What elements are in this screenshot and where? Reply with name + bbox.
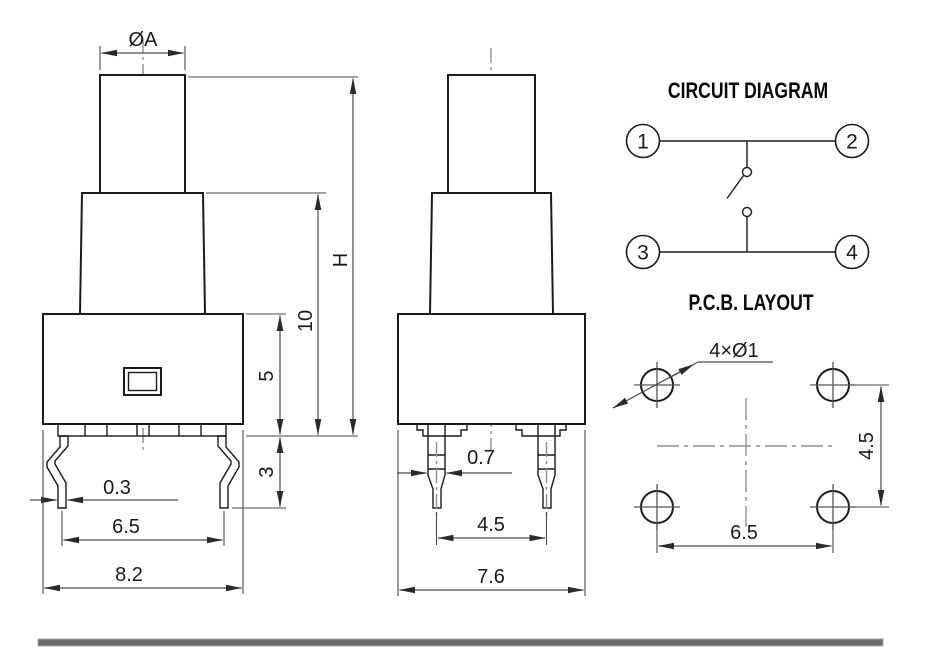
dim-plunger-diameter: ØA [129, 29, 159, 51]
front-right-leg [218, 436, 239, 508]
terminal-2-label: 2 [846, 130, 858, 153]
pcb-hole-bottom-left [634, 484, 680, 530]
side-left-tab [417, 424, 467, 436]
bottom-divider-bar [38, 639, 883, 646]
dim-leg-thickness: 0.3 [103, 477, 131, 499]
pcb-layout-title: P.C.B. LAYOUT [688, 291, 813, 315]
pcb-hole-bottom-right [810, 484, 856, 530]
dim-leg-spacing: 6.5 [112, 516, 140, 538]
dim-body-width: 8.2 [115, 564, 143, 586]
dim-body-depth: 7.6 [477, 566, 505, 588]
pcb-dim-horizontal: 6.5 [730, 522, 758, 544]
dim-pin-width: 0.7 [467, 447, 495, 469]
side-plunger [448, 75, 535, 193]
terminal-4-label: 4 [846, 241, 858, 264]
pcb-hole-top-right [810, 362, 856, 408]
drawing-canvas: ØA H 10 5 3 0.3 6.5 8.2 [0, 0, 928, 668]
pcb-hole-top-left [634, 362, 680, 408]
dim-pin-spacing: 4.5 [477, 514, 505, 536]
dim-upper-height: 10 [295, 310, 317, 332]
dim-body-height: 5 [256, 370, 278, 381]
circuit-diagram-title: CIRCUIT DIAGRAM [668, 79, 828, 103]
pcb-hole-callout-label: 4×Ø1 [709, 340, 758, 362]
side-body [398, 314, 585, 424]
switch-contact-upper [743, 168, 752, 177]
side-mid-section [430, 193, 553, 314]
front-view [43, 38, 243, 508]
circuit-diagram: CIRCUIT DIAGRAM 1 2 3 4 [627, 79, 869, 268]
switch-lever [727, 176, 744, 199]
side-right-tab [516, 424, 566, 436]
dim-leg-length: 3 [256, 466, 278, 477]
side-view-dimensions: 0.7 4.5 7.6 [397, 430, 585, 596]
pcb-hole-callout: 4×Ø1 [613, 340, 773, 408]
technical-drawing-page: ØA H 10 5 3 0.3 6.5 8.2 [0, 0, 928, 668]
front-mid-section [80, 193, 205, 314]
switch-contact-lower [743, 208, 752, 217]
front-left-leg [47, 436, 68, 508]
front-plunger [100, 75, 185, 193]
terminal-3-label: 3 [637, 241, 649, 264]
pcb-layout: P.C.B. LAYOUT 4× [613, 291, 889, 553]
terminal-1-label: 1 [637, 130, 649, 153]
dim-total-height: H [330, 253, 352, 267]
pcb-dim-vertical: 4.5 [856, 432, 878, 460]
